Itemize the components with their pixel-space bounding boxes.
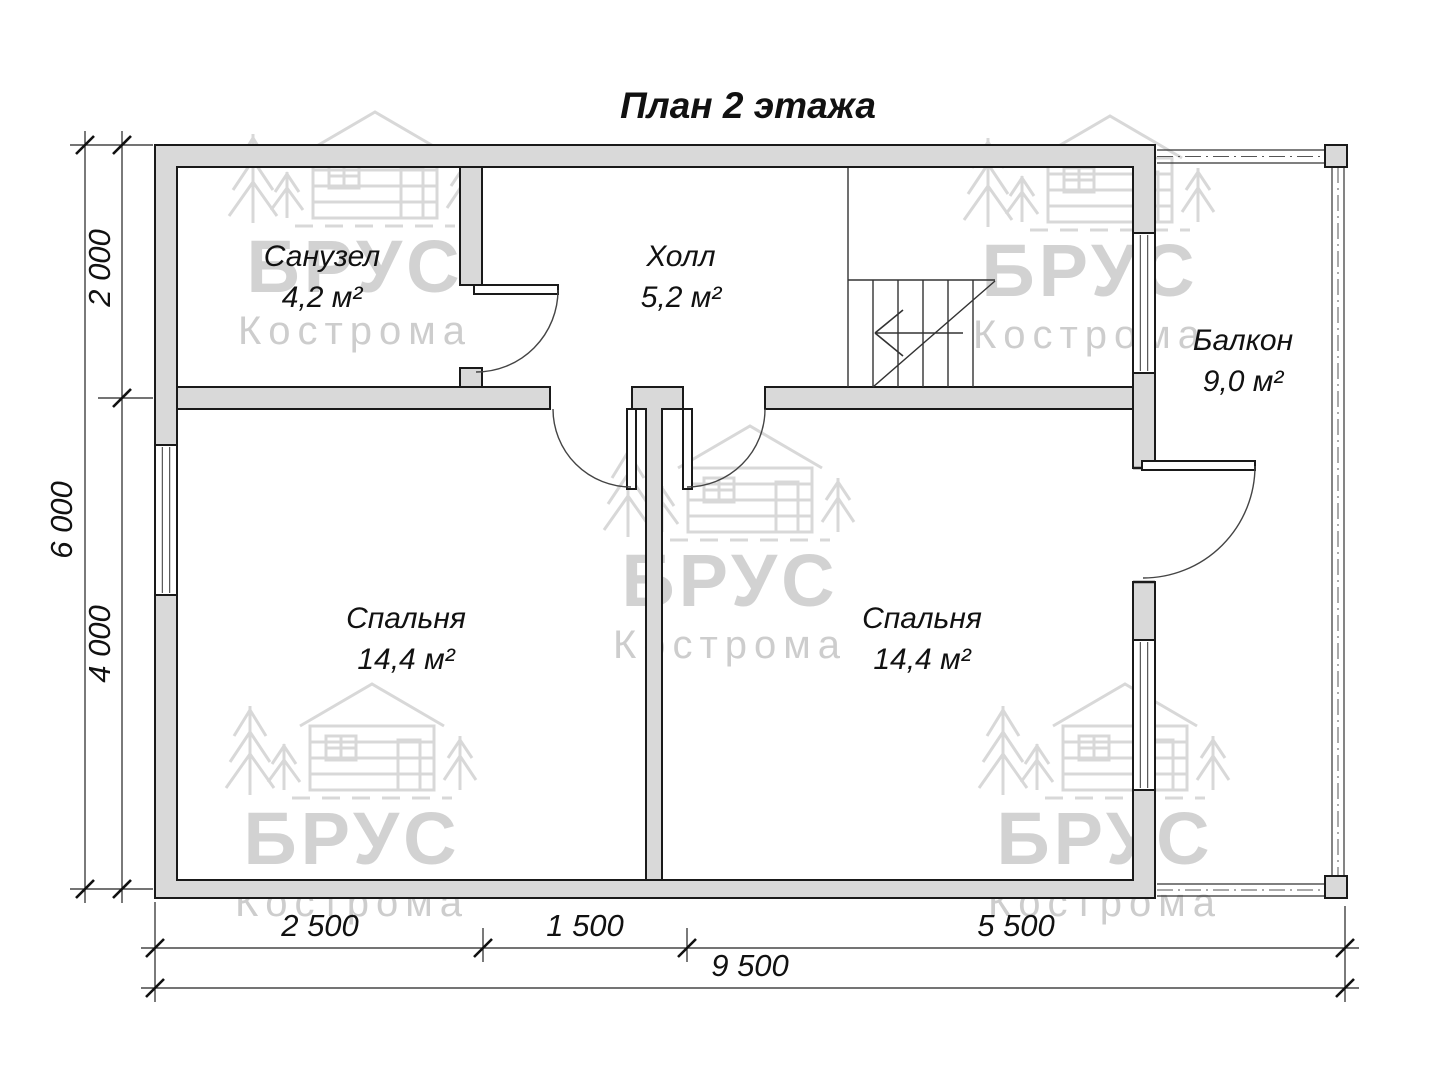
- dimension-ticks: [76, 136, 1354, 997]
- balcony-railing: [1157, 145, 1347, 898]
- dimension-lines: [70, 131, 1359, 1002]
- stairs: [848, 168, 995, 387]
- balcony-post-top: [1325, 145, 1347, 167]
- bathroom-door-arc: [476, 290, 558, 372]
- bedroom-left-door-leaf: [627, 409, 636, 489]
- bathroom-wall-stub: [460, 368, 482, 387]
- floor-plan-page: БРУС Кострома БРУС Кострома: [0, 0, 1440, 1080]
- bathroom-wall: [460, 167, 482, 285]
- bedroom-divider-wall: [632, 387, 683, 880]
- balcony-door-leaf: [1142, 461, 1255, 470]
- bathroom-door-leaf: [474, 285, 558, 294]
- interior-walls: [177, 167, 1133, 880]
- bedroom-right-door-arc: [687, 409, 765, 487]
- hall-bedroom-wall-right: [765, 387, 1133, 409]
- window-left: [155, 445, 177, 595]
- floor-plan-drawing: [0, 0, 1440, 1080]
- stairs-direction-arrow: [875, 310, 963, 356]
- stairs-break-line: [873, 281, 995, 387]
- balcony-post-bottom: [1325, 876, 1347, 898]
- balcony-door-opening: [1131, 468, 1157, 582]
- bedroom-left-door-arc: [553, 409, 631, 487]
- window-right-top: [1133, 233, 1155, 373]
- window-right-bottom: [1133, 640, 1155, 790]
- bedroom-right-door-leaf: [683, 409, 692, 489]
- balcony-door-arc: [1143, 466, 1255, 578]
- hall-bedroom-wall-left: [177, 387, 550, 409]
